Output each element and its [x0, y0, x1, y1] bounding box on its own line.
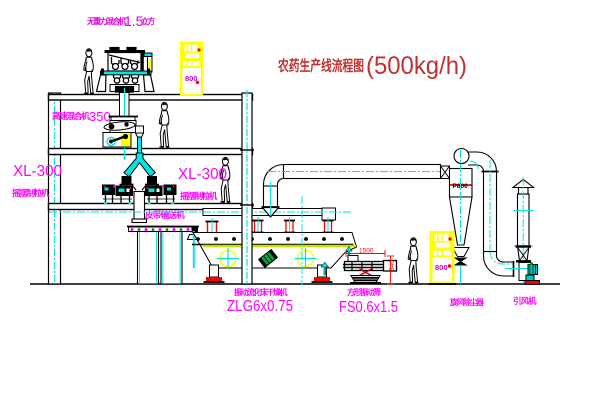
svg-text:旋风除尘器: 旋风除尘器	[449, 297, 485, 307]
svg-text:800: 800	[435, 263, 448, 272]
svg-text:FS0.6x1.5: FS0.6x1.5	[339, 299, 398, 316]
svg-text:农药生产线流程图: 农药生产线流程图	[277, 57, 364, 75]
svg-text:1500: 1500	[359, 248, 374, 255]
svg-text:立方: 立方	[141, 16, 155, 26]
svg-text:摇摆制粒机: 摇摆制粒机	[12, 188, 50, 198]
svg-text:引风机: 引风机	[513, 296, 537, 306]
svg-text:800: 800	[185, 74, 198, 83]
svg-text:XL-300: XL-300	[178, 166, 227, 183]
svg-text:540: 540	[389, 260, 396, 271]
svg-text:振动流化床干燥机: 振动流化床干燥机	[234, 287, 287, 297]
svg-text:高速混合机: 高速混合机	[52, 111, 90, 121]
svg-text:方形振动筛: 方形振动筛	[347, 287, 381, 297]
svg-text:(500kg/h): (500kg/h)	[366, 52, 467, 80]
svg-text:摇摆制粒机: 摇摆制粒机	[180, 191, 218, 201]
svg-text:无重力混合机: 无重力混合机	[86, 16, 126, 26]
svg-text:ZLG6x0.75: ZLG6x0.75	[227, 298, 293, 315]
svg-text:XL-300: XL-300	[13, 163, 62, 180]
svg-text:350: 350	[89, 109, 111, 124]
